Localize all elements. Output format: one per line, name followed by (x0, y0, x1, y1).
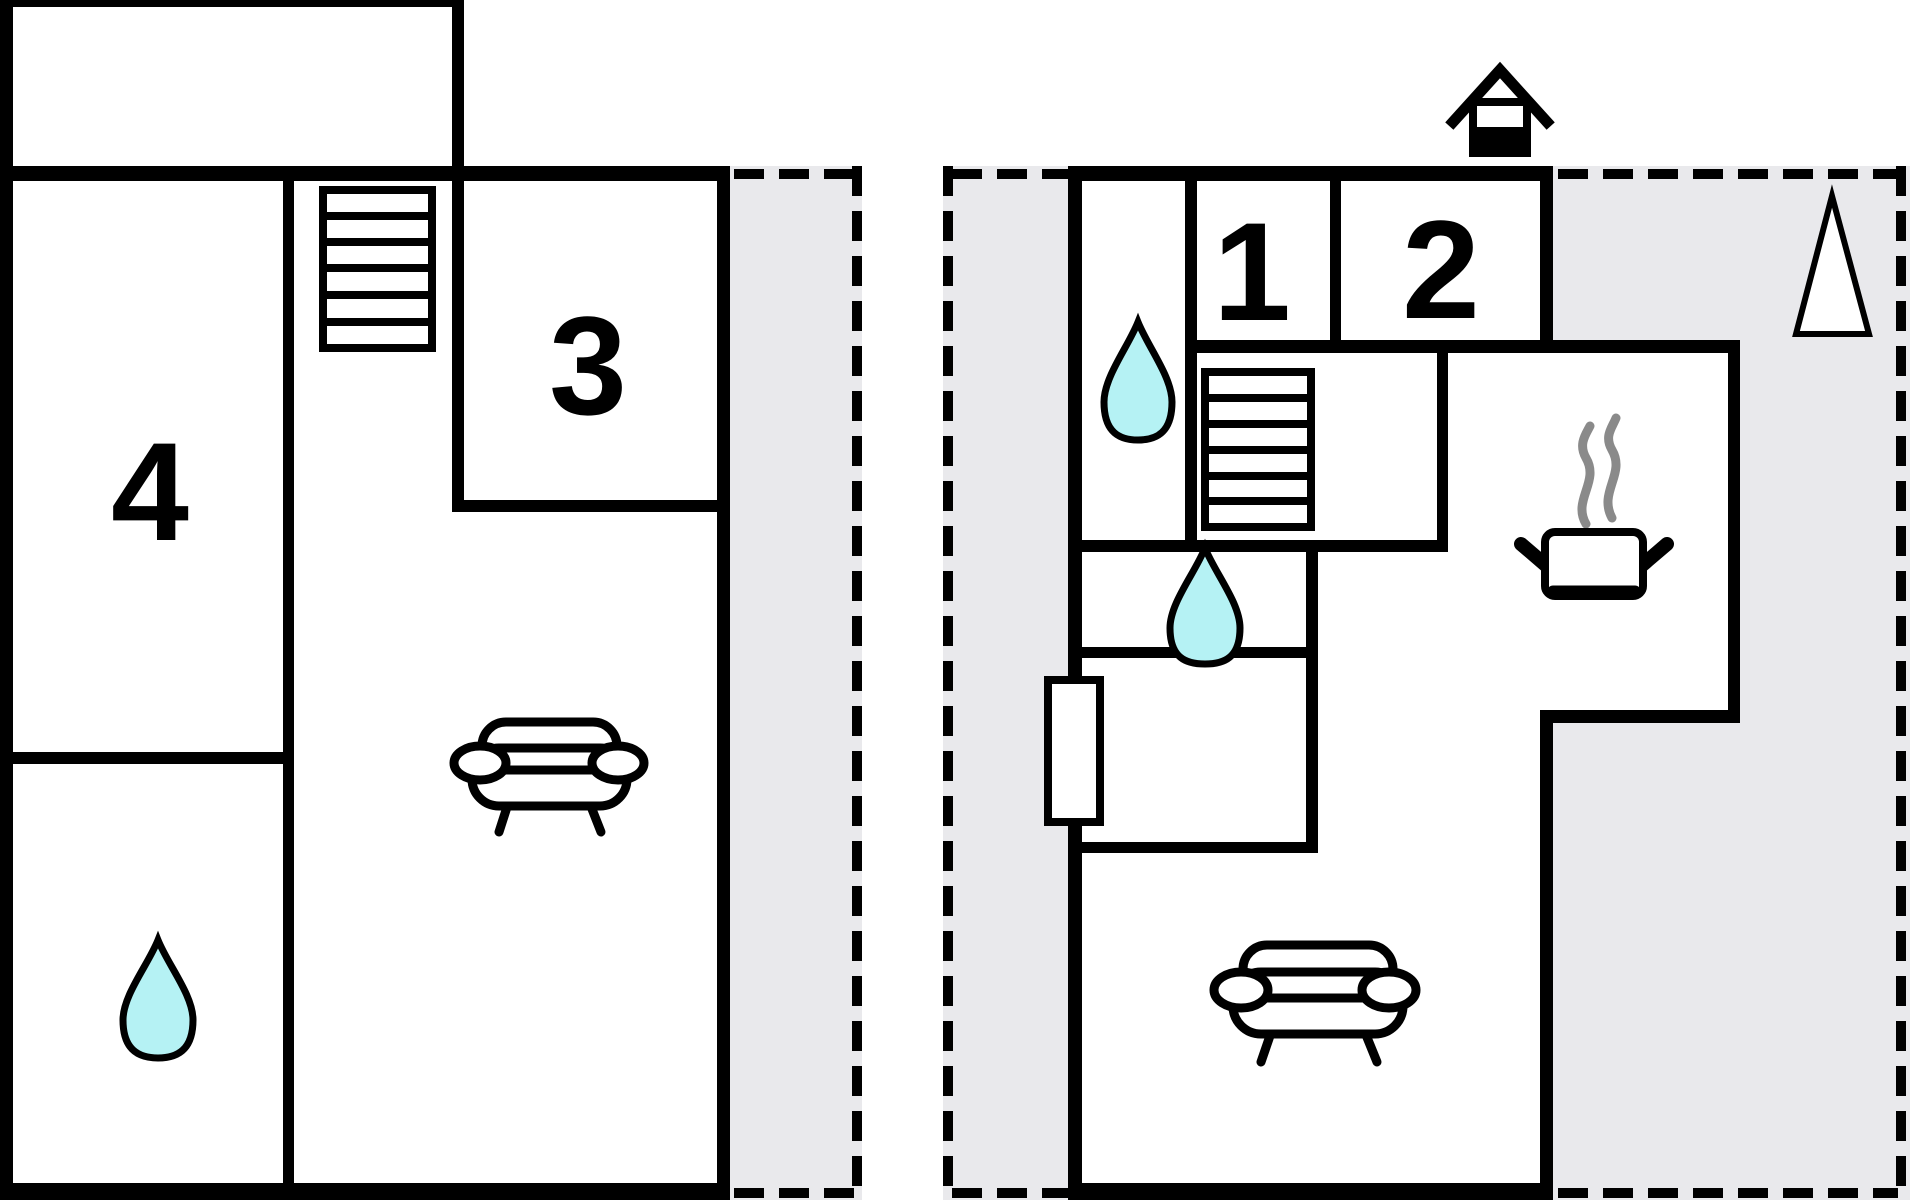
wall (283, 181, 294, 1183)
sofa-icon (454, 722, 644, 832)
wall (1082, 842, 1318, 853)
wall (1068, 1183, 1553, 1200)
wall (717, 166, 730, 1200)
wall (0, 166, 730, 181)
wall (1540, 710, 1740, 723)
terrace-left-plan (730, 166, 862, 1200)
room-3-label: 3 (549, 287, 627, 444)
floor-plan-canvas: 4 3 (0, 0, 1920, 1200)
door-icon (1048, 680, 1100, 822)
wall (1437, 353, 1448, 552)
wall (1728, 340, 1740, 723)
wall (0, 0, 463, 7)
wall (1082, 540, 1448, 552)
staircase-icon (323, 190, 432, 348)
terrace-area (730, 166, 862, 1200)
staircase-icon (1205, 372, 1311, 527)
wall (1306, 546, 1318, 853)
wall (1540, 166, 1553, 353)
chimney-icon (1453, 70, 1547, 153)
room-1-label: 1 (1213, 193, 1291, 350)
wall (1540, 710, 1553, 1200)
wall (13, 752, 294, 764)
wall (0, 1183, 730, 1200)
wall (1330, 181, 1341, 340)
room-4-label: 4 (111, 413, 189, 570)
water-drop-icon (123, 940, 193, 1058)
floor-plan-left: 4 3 (0, 0, 730, 1200)
wall (452, 500, 730, 512)
wall (452, 0, 464, 512)
wall (1185, 181, 1197, 552)
room-2-label: 2 (1402, 191, 1480, 348)
wall (1068, 166, 1553, 181)
